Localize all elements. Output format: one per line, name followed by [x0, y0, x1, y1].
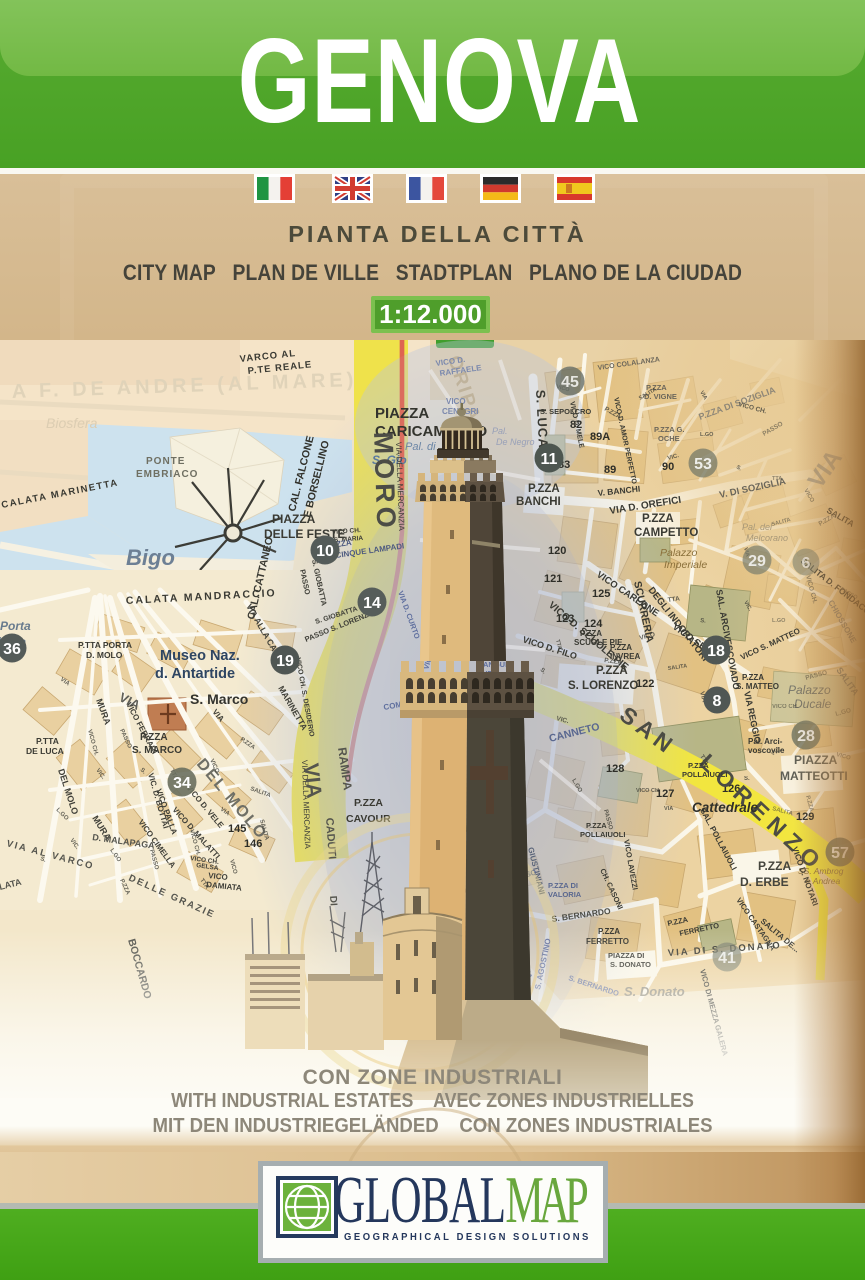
svg-text:P.ZZA DI: P.ZZA DI [548, 881, 578, 890]
svg-text:89A: 89A [590, 431, 610, 443]
svg-text:POLLAIUOLI: POLLAIUOLI [580, 830, 625, 839]
svg-text:Palazzo: Palazzo [660, 547, 698, 559]
svg-text:P.TTA PORTA: P.TTA PORTA [78, 640, 132, 650]
svg-text:89: 89 [604, 464, 616, 476]
svg-text:PONTE: PONTE [146, 456, 185, 467]
svg-text:P.ZZA: P.ZZA [586, 821, 607, 830]
svg-text:8: 8 [713, 693, 722, 710]
svg-text:120: 120 [548, 545, 566, 557]
svg-text:Pal. di: Pal. di [405, 441, 436, 453]
svg-text:BANCHI: BANCHI [516, 496, 561, 508]
svg-text:S. MATTEO: S. MATTEO [736, 682, 779, 691]
svg-text:34: 34 [173, 775, 191, 792]
svg-text:S. LUCA: S. LUCA [533, 389, 551, 449]
svg-text:P.ZZA G.: P.ZZA G. [654, 425, 684, 434]
svg-text:S. LORENZO: S. LORENZO [568, 680, 638, 692]
svg-text:128: 128 [606, 763, 624, 775]
svg-text:Bigo: Bigo [126, 545, 175, 570]
svg-text:Melcorano: Melcorano [746, 533, 788, 543]
svg-text:125: 125 [592, 588, 610, 600]
svg-text:S.: S. [744, 776, 750, 782]
svg-text:36: 36 [3, 641, 21, 658]
svg-text:11: 11 [541, 451, 558, 468]
svg-text:10: 10 [316, 543, 334, 560]
svg-text:De Negro: De Negro [496, 437, 535, 447]
svg-text:121: 121 [544, 573, 562, 585]
svg-text:L.GO: L.GO [772, 618, 786, 624]
svg-text:D. MOLO: D. MOLO [86, 650, 123, 660]
svg-text:VALORIA: VALORIA [548, 890, 582, 899]
svg-text:P.ZZA: P.ZZA [580, 629, 602, 638]
svg-text:123: 123 [556, 613, 574, 625]
svg-text:122: 122 [636, 678, 654, 690]
svg-text:P.ZZA: P.ZZA [354, 797, 383, 809]
svg-text:VICO CH.: VICO CH. [636, 788, 661, 794]
svg-text:P.ZZA: P.ZZA [610, 643, 632, 652]
svg-text:S. SEPOLCRO: S. SEPOLCRO [540, 407, 591, 416]
svg-text:P.ZZA: P.ZZA [758, 859, 791, 873]
svg-text:14: 14 [363, 595, 381, 612]
svg-text:18: 18 [707, 643, 725, 660]
svg-text:D. ERBE: D. ERBE [740, 875, 789, 889]
svg-text:Museo Naz.: Museo Naz. [160, 648, 240, 664]
svg-text:Pal. del: Pal. del [742, 522, 773, 532]
svg-text:DI: DI [327, 895, 339, 906]
svg-text:L.GO: L.GO [700, 432, 714, 438]
svg-text:VIA: VIA [664, 806, 673, 812]
svg-text:P.TTA: P.TTA [36, 736, 59, 746]
svg-text:POLLAIUOLI: POLLAIUOLI [682, 770, 727, 779]
svg-text:Porta: Porta [0, 619, 31, 633]
svg-text:OCHE: OCHE [658, 434, 680, 443]
svg-text:29: 29 [748, 553, 766, 570]
svg-text:P.ZZA: P.ZZA [642, 513, 674, 525]
svg-text:PIAZZA: PIAZZA [375, 405, 429, 422]
svg-text:Pal.: Pal. [492, 426, 508, 436]
svg-text:45: 45 [561, 374, 579, 391]
svg-text:CAMPETTO: CAMPETTO [634, 527, 698, 539]
svg-text:VIA: VIA [299, 762, 326, 799]
svg-text:Biosfera: Biosfera [46, 415, 98, 431]
svg-text:19: 19 [276, 653, 294, 670]
svg-text:P.ZZA: P.ZZA [742, 673, 764, 682]
svg-text:P.ZZA: P.ZZA [596, 665, 628, 677]
svg-text:DE LUCA: DE LUCA [26, 746, 64, 756]
svg-text:Imperiale: Imperiale [664, 559, 707, 571]
svg-text:S. Marco: S. Marco [190, 691, 248, 707]
svg-text:53: 53 [694, 456, 712, 473]
svg-text:90: 90 [662, 461, 674, 473]
svg-text:EMBRIACO: EMBRIACO [136, 469, 198, 480]
svg-text:Pal. Arci-: Pal. Arci- [748, 737, 783, 746]
svg-text:P.ZZA: P.ZZA [528, 483, 560, 495]
svg-text:PIAZZA: PIAZZA [272, 512, 316, 526]
svg-text:TTA: TTA [772, 476, 782, 482]
svg-text:d. Antartide: d. Antartide [155, 666, 235, 682]
